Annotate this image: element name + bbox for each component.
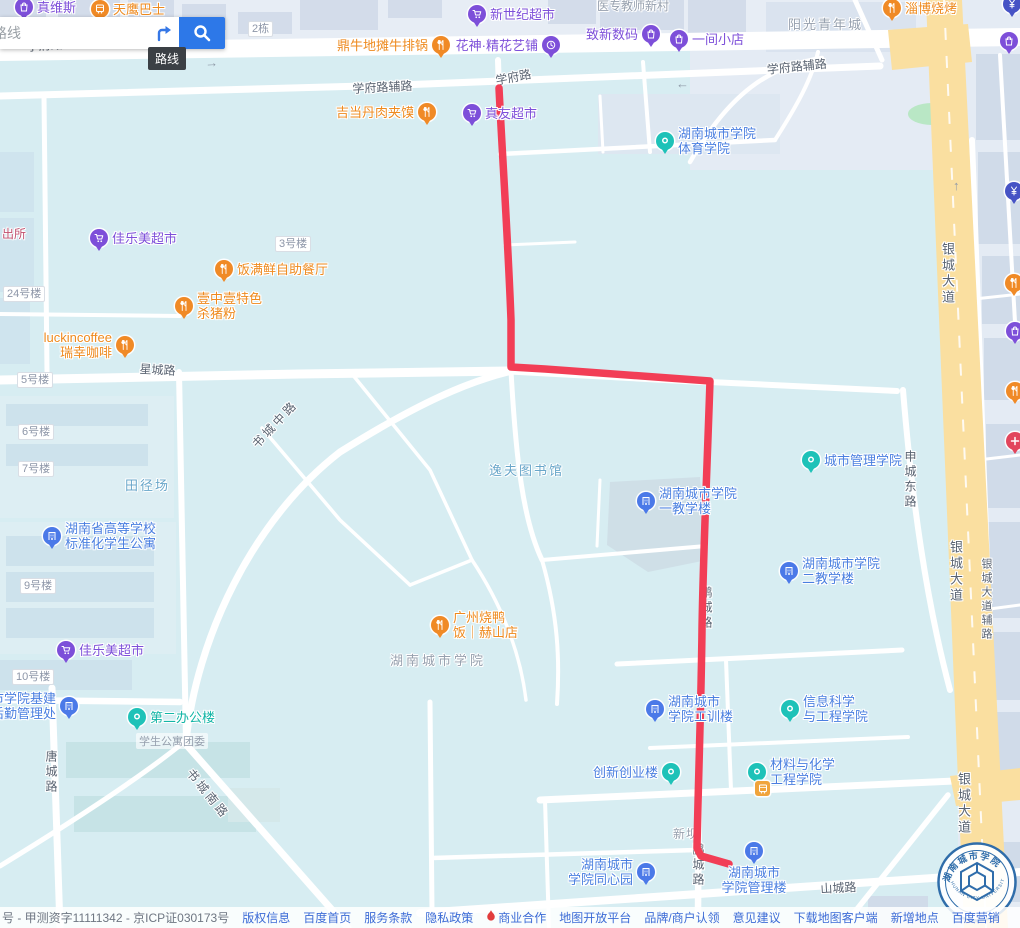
poi-label: luckincoffee瑞幸咖啡: [44, 330, 112, 360]
bus-icon: [755, 781, 770, 796]
bag-icon: [1006, 322, 1020, 340]
route-tooltip: 路线: [148, 47, 186, 70]
building-icon: [745, 842, 763, 860]
food-icon: [418, 103, 436, 121]
poi-label: 吉当丹肉夹馍: [336, 105, 414, 120]
building-icon: [43, 527, 61, 545]
footer-link[interactable]: 意见建议: [733, 909, 781, 926]
footer-bar: 号 - 甲测资字11111342 - 京ICP证030173号 版权信息百度首页…: [0, 907, 1020, 928]
bag-icon: [1000, 32, 1018, 50]
food-icon: [432, 36, 450, 54]
poi-label: 佳乐美超市: [79, 643, 144, 658]
food-icon: [215, 260, 233, 278]
poi-label: 湖南城市学院二教学楼: [802, 556, 880, 586]
bus-icon: [91, 0, 109, 18]
poi-label: 饭满鲜自助餐厅: [237, 262, 328, 277]
ring-icon: [128, 708, 146, 726]
footer-link[interactable]: 版权信息: [242, 909, 290, 926]
ring-icon: [748, 763, 766, 781]
poi-label: 湖南省高等学校标准化学生公寓: [65, 521, 156, 551]
footer-link[interactable]: 品牌/商户认领: [644, 909, 719, 926]
yen-icon: [1003, 0, 1020, 13]
cart-icon: [463, 104, 481, 122]
directions-button[interactable]: [146, 17, 179, 49]
poi-label: 城市管理学院: [824, 453, 902, 468]
cart-icon: [57, 641, 75, 659]
poi-label: 新世纪超市: [490, 7, 555, 22]
food-icon: [1005, 274, 1020, 292]
poi-label: 湖南城市学院工训楼: [668, 694, 733, 724]
poi-label: 花神·精花艺铺: [456, 38, 538, 53]
ring-icon: [662, 763, 680, 781]
building-icon: [637, 863, 655, 881]
cross-icon: [1006, 432, 1020, 450]
map-canvas[interactable]: 学府路学府路辅路学府路学府路辅路星城路书城中路书城南路唐城路申城东路银城大道银城…: [0, 0, 1020, 928]
poi-label: 湖南城市学院管理楼: [721, 865, 786, 895]
poi-label: 创新创业楼: [593, 765, 658, 780]
footer-link[interactable]: 服务条款: [364, 909, 412, 926]
poi-label: 真维斯: [37, 0, 76, 15]
poi-label: 湖南城市学院体育学院: [678, 126, 756, 156]
poi-label: 第二办公楼: [150, 710, 215, 725]
search-input[interactable]: 路线: [0, 17, 146, 49]
poi-label: 鼎牛地摊牛排锅: [337, 38, 428, 53]
bag-icon: [670, 30, 688, 48]
icp-text: 号 - 甲测资字11111342 - 京ICP证030173号: [2, 909, 229, 926]
footer-link[interactable]: 百度营销: [952, 909, 1000, 926]
cart-icon: [90, 229, 108, 247]
poi-label: 致新数码: [586, 27, 638, 42]
poi-label: 湖南城市学院一教学楼: [659, 486, 737, 516]
poi-label: 湖南城市学院同心园: [568, 857, 633, 887]
building-icon: [60, 697, 78, 715]
poi-label: 材料与化学工程学院: [770, 757, 835, 787]
poi-label: 佳乐美超市: [112, 231, 177, 246]
footer-link[interactable]: 下载地图客户端: [794, 909, 878, 926]
search-button[interactable]: [179, 17, 225, 49]
food-icon: [116, 336, 134, 354]
food-icon: [431, 616, 449, 634]
ring-icon: [656, 132, 674, 150]
poi-label: 天鹰巴士: [113, 2, 165, 17]
building-icon: [780, 562, 798, 580]
footer-links: 版权信息百度首页服务条款隐私政策商业合作地图开放平台品牌/商户认领意见建议下载地…: [242, 909, 1000, 926]
poi-label: 信息科学与工程学院: [803, 694, 868, 724]
food-icon: [1006, 382, 1020, 400]
clock-icon: [542, 36, 560, 54]
food-icon: [175, 297, 193, 315]
poi-layer: 真维斯天鹰巴士新世纪超市鼎牛地摊牛排锅花神·精花艺铺致新数码一间小店淄博烧烤吉当…: [0, 0, 1020, 928]
footer-link[interactable]: 商业合作: [486, 909, 546, 926]
poi-label: 一间小店: [692, 32, 744, 47]
footer-link[interactable]: 地图开放平台: [559, 909, 631, 926]
footer-link[interactable]: 新增地点: [891, 909, 939, 926]
building-icon: [646, 700, 664, 718]
building-icon: [637, 492, 655, 510]
flame-icon: [486, 910, 496, 925]
poi-label: 城市学院基建与后勤管理处: [0, 691, 56, 721]
ring-icon: [781, 700, 799, 718]
cart-icon: [468, 5, 486, 23]
bag-icon: [15, 0, 33, 16]
poi-label: 淄博烧烤: [905, 1, 957, 16]
ring-icon: [802, 451, 820, 469]
food-icon: [883, 0, 901, 17]
poi-label: 广州烧鸭饭｜赫山店: [453, 610, 518, 640]
bag-icon: [642, 25, 660, 43]
poi-label: 真友超市: [485, 106, 537, 121]
directions-icon: [153, 23, 173, 43]
search-input-text: 路线: [0, 23, 21, 43]
search-icon: [193, 24, 211, 42]
footer-link[interactable]: 隐私政策: [425, 909, 473, 926]
yen-icon: [1005, 182, 1020, 200]
search-bar: 路线: [0, 17, 225, 49]
footer-link[interactable]: 百度首页: [303, 909, 351, 926]
poi-label: 壹中壹特色杀猪粉: [197, 291, 262, 321]
